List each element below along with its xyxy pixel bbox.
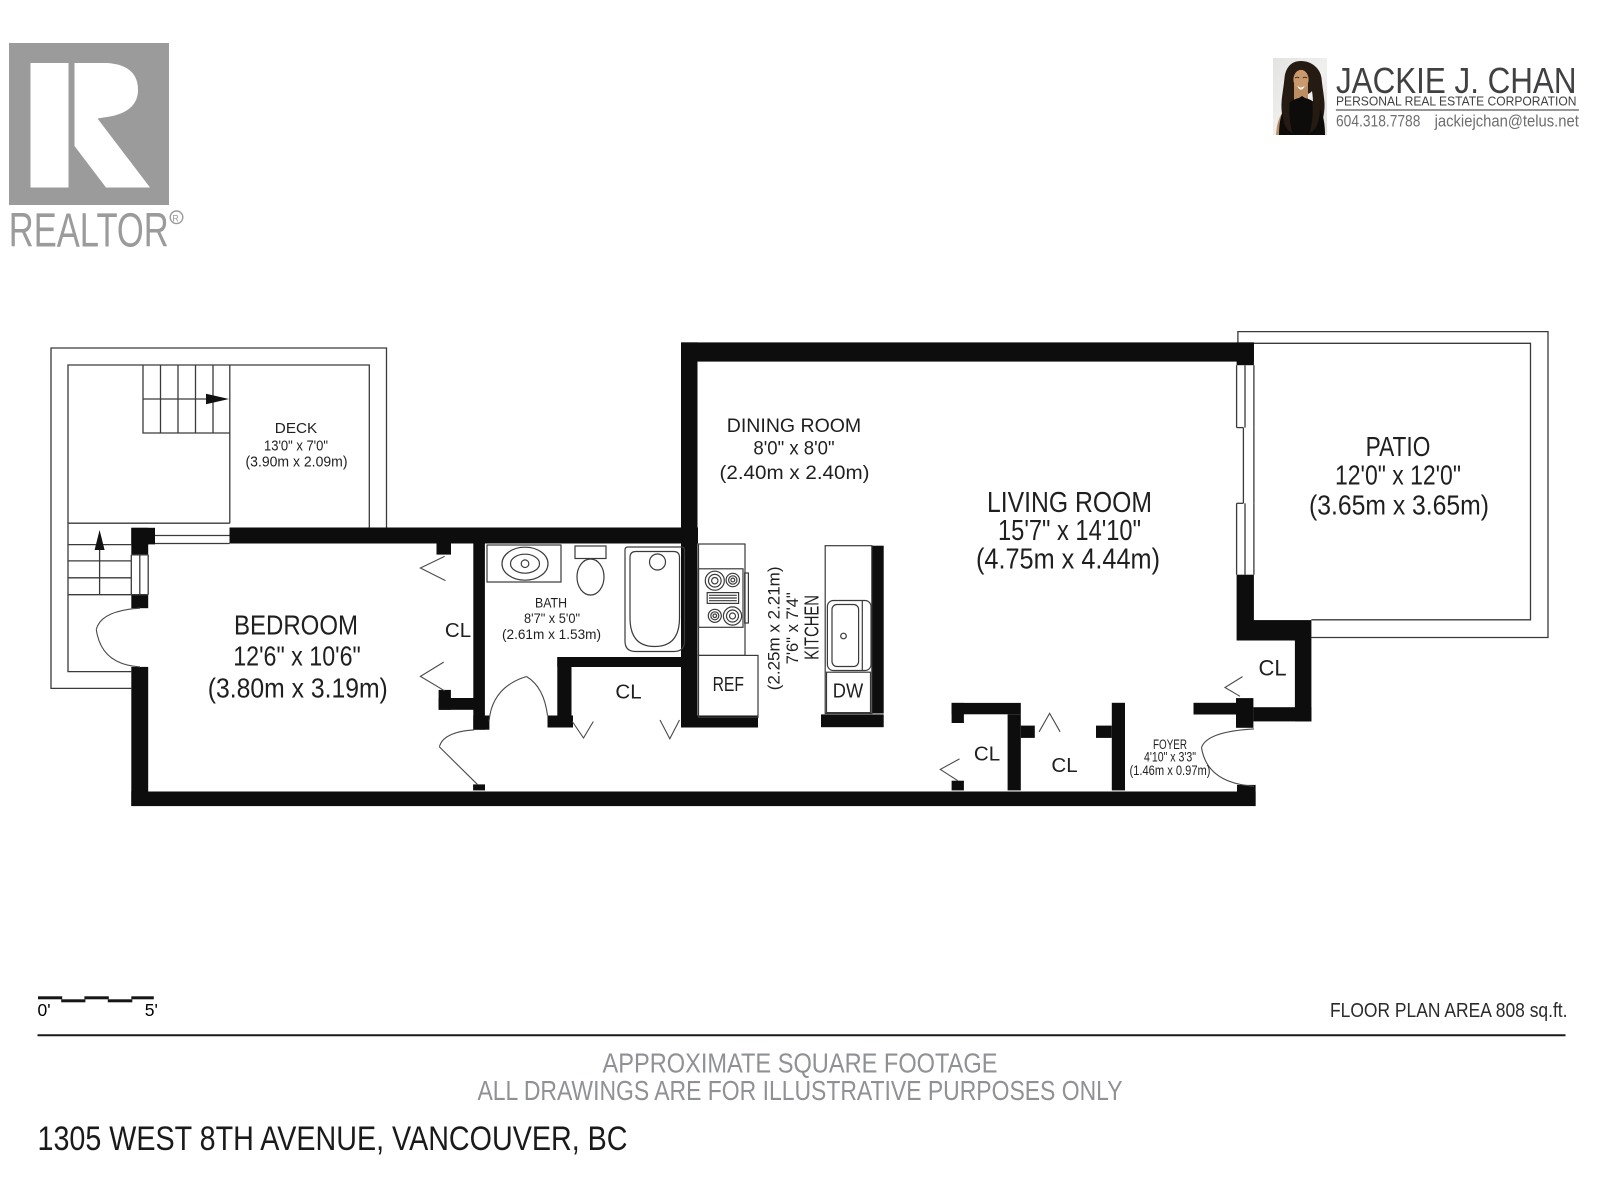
svg-text:CL: CL [615, 681, 641, 704]
svg-text:604.318.7788: 604.318.7788 [1336, 112, 1420, 131]
svg-text:DECK: DECK [275, 421, 318, 437]
svg-text:(2.25m x 2.21m): (2.25m x 2.21m) [765, 567, 784, 691]
svg-text:(1.46m x 0.97m): (1.46m x 0.97m) [1130, 763, 1211, 778]
svg-text:(3.65m x 3.65m): (3.65m x 3.65m) [1309, 490, 1489, 521]
svg-text:REALTOR: REALTOR [9, 204, 169, 257]
svg-text:ALL DRAWINGS ARE FOR ILLUSTRAT: ALL DRAWINGS ARE FOR ILLUSTRATIVE PURPOS… [478, 1075, 1123, 1106]
svg-text:PATIO: PATIO [1366, 431, 1431, 462]
svg-text:CL: CL [1051, 754, 1077, 777]
svg-text:1305 WEST 8TH AVENUE, VANCOUVE: 1305 WEST 8TH AVENUE, VANCOUVER, BC [38, 1120, 628, 1158]
svg-text:(4.75m x 4.44m): (4.75m x 4.44m) [976, 544, 1160, 576]
svg-text:APPROXIMATE SQUARE FOOTAGE: APPROXIMATE SQUARE FOOTAGE [603, 1048, 998, 1079]
svg-text:CL: CL [974, 743, 1000, 766]
svg-text:DINING ROOM: DINING ROOM [727, 415, 861, 437]
svg-text:12'6" x 10'6": 12'6" x 10'6" [233, 640, 361, 671]
svg-text:5': 5' [145, 1000, 158, 1020]
svg-text:CL: CL [445, 619, 471, 642]
svg-text:jackiejchan@telus.net: jackiejchan@telus.net [1434, 112, 1579, 131]
svg-text:(3.90m x 2.09m): (3.90m x 2.09m) [246, 455, 348, 471]
svg-text:13'0" x 7'0": 13'0" x 7'0" [264, 439, 328, 455]
svg-text:BATH: BATH [535, 595, 567, 611]
svg-text:0': 0' [38, 1000, 51, 1020]
svg-text:(2.40m x 2.40m): (2.40m x 2.40m) [720, 462, 870, 484]
svg-text:R: R [172, 213, 179, 223]
svg-text:8'0" x 8'0": 8'0" x 8'0" [753, 437, 834, 459]
svg-text:8'7" x 5'0": 8'7" x 5'0" [524, 610, 580, 626]
svg-text:PERSONAL REAL ESTATE CORPORATI: PERSONAL REAL ESTATE CORPORATION [1336, 94, 1577, 109]
svg-text:(2.61m x 1.53m): (2.61m x 1.53m) [502, 626, 601, 642]
svg-text:15'7" x 14'10": 15'7" x 14'10" [998, 515, 1141, 547]
svg-text:(3.80m x 3.19m): (3.80m x 3.19m) [208, 673, 388, 704]
svg-text:7'6" x 7'4": 7'6" x 7'4" [784, 592, 802, 664]
svg-text:CL: CL [1259, 656, 1287, 681]
svg-text:KITCHEN: KITCHEN [800, 595, 823, 660]
svg-text:FLOOR PLAN AREA 808 sq.ft.: FLOOR PLAN AREA 808 sq.ft. [1330, 999, 1568, 1022]
svg-text:DW: DW [833, 680, 864, 703]
svg-text:12'0" x 12'0": 12'0" x 12'0" [1335, 460, 1461, 491]
svg-text:BEDROOM: BEDROOM [234, 610, 358, 641]
svg-text:REF: REF [713, 673, 744, 696]
